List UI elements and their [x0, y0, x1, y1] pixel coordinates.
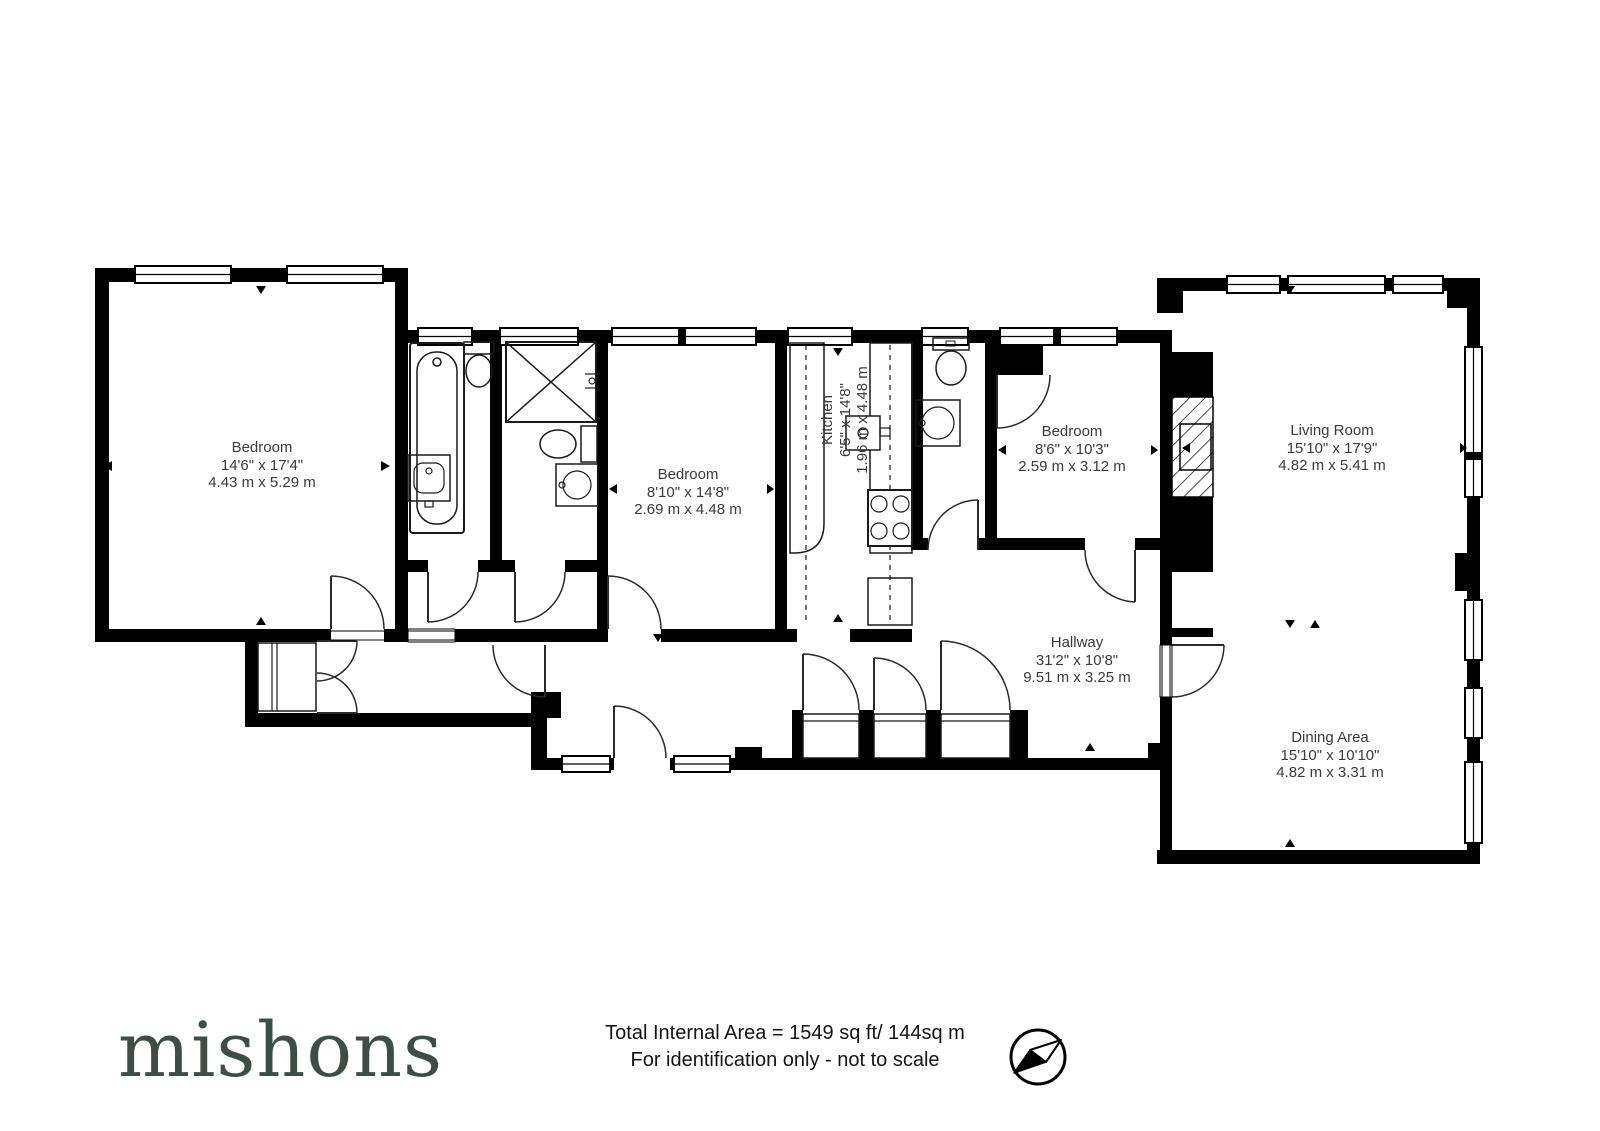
bathtub	[410, 343, 464, 533]
shower	[506, 342, 599, 422]
room-dims-imperial: 8'10" x 14'8"	[634, 483, 742, 501]
toilet	[540, 426, 597, 462]
sink	[556, 464, 598, 506]
room-dims-imperial: 31'2" x 10'8"	[1023, 651, 1131, 669]
plan-notes: Total Internal Area = 1549 sq ft/ 144sq …	[605, 1020, 965, 1074]
room-dims-metric: 4.82 m x 3.31 m	[1276, 764, 1384, 782]
room-label-bedroom-1: Bedroom 14'6" x 17'4" 4.43 m x 5.29 m	[208, 439, 316, 492]
room-dims-metric: 2.69 m x 4.48 m	[634, 501, 742, 519]
room-name: Hallway	[1023, 634, 1131, 652]
room-dims-imperial: 15'10" x 17'9"	[1278, 439, 1386, 457]
room-label-hallway: Hallway 31'2" x 10'8" 9.51 m x 3.25 m	[1023, 634, 1131, 687]
room-dims-metric: 4.43 m x 5.29 m	[208, 474, 316, 492]
room-label-dining-area: Dining Area 15'10" x 10'10" 4.82 m x 3.3…	[1276, 729, 1384, 782]
room-label-living-room: Living Room 15'10" x 17'9" 4.82 m x 5.41…	[1278, 422, 1386, 475]
walls	[95, 268, 1480, 864]
sink	[408, 455, 450, 507]
room-dims-imperial: 8'6" x 10'3"	[1018, 440, 1126, 458]
room-dims-metric: 9.51 m x 3.25 m	[1023, 669, 1131, 687]
room-name: Bedroom	[634, 466, 742, 484]
disclaimer-text: For identification only - not to scale	[605, 1047, 965, 1074]
wardrobe	[258, 643, 316, 711]
compass-icon	[1005, 1024, 1071, 1090]
stove	[868, 490, 912, 546]
room-name: Kitchen	[819, 366, 837, 474]
hall-closets	[803, 714, 1010, 758]
room-label-bedroom-3: Bedroom 8'6" x 10'3" 2.59 m x 3.12 m	[1018, 423, 1126, 476]
room-dims-metric: 4.82 m x 5.41 m	[1278, 457, 1386, 475]
room-dims-metric: 1.96 m x 4.48 m	[854, 366, 872, 474]
room-name: Dining Area	[1276, 729, 1384, 747]
floor-plan	[0, 0, 1600, 1131]
room-dims-imperial: 15'10" x 10'10"	[1276, 746, 1384, 764]
room-name: Bedroom	[208, 439, 316, 457]
total-area-text: Total Internal Area = 1549 sq ft/ 144sq …	[605, 1020, 965, 1047]
room-dims-imperial: 6'5" x 14'8"	[836, 366, 854, 474]
room-dims-imperial: 14'6" x 17'4"	[208, 456, 316, 474]
brand-logo: mishons	[118, 1012, 443, 1088]
room-label-bedroom-2: Bedroom 8'10" x 14'8" 2.69 m x 4.48 m	[634, 466, 742, 519]
chimney-breast	[1172, 397, 1213, 497]
room-name: Living Room	[1278, 422, 1386, 440]
room-label-kitchen: Kitchen 6'5" x 14'8" 1.96 m x 4.48 m	[819, 366, 872, 474]
room-dims-metric: 2.59 m x 3.12 m	[1018, 458, 1126, 476]
floorplan-page: Bedroom 14'6" x 17'4" 4.43 m x 5.29 m Be…	[0, 0, 1600, 1131]
toilet	[464, 342, 494, 387]
room-name: Bedroom	[1018, 423, 1126, 441]
